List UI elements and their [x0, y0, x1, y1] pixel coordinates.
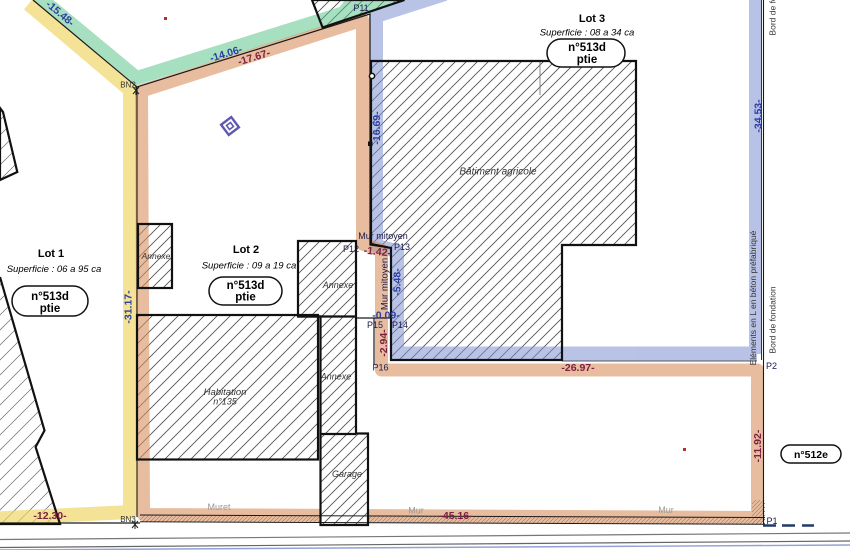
svg-text:Mur mitoyen: Mur mitoyen [380, 258, 391, 310]
svg-text:BN2: BN2 [120, 81, 136, 90]
svg-text:Garage: Garage [332, 469, 362, 479]
svg-text:P12: P12 [343, 244, 359, 254]
svg-text:Superficie : 09 a 19 ca: Superficie : 09 a 19 ca [202, 261, 297, 272]
svg-text:-34.53-: -34.53- [753, 99, 765, 133]
svg-text:n°135: n°135 [213, 397, 238, 407]
svg-text:Mur: Mur [408, 506, 424, 516]
svg-text:Annexe: Annexe [322, 280, 354, 290]
svg-text:-31.17-: -31.17- [123, 290, 135, 324]
svg-text:P1: P1 [766, 516, 777, 526]
svg-text:n°513d: n°513d [568, 42, 606, 54]
svg-text:-45.16-: -45.16- [439, 510, 473, 522]
svg-text:-12.30-: -12.30- [33, 510, 67, 522]
svg-text:Muret: Muret [207, 502, 231, 512]
svg-text:-2.94-: -2.94- [378, 329, 390, 357]
svg-text:n°513d: n°513d [31, 291, 69, 303]
svg-text:P11: P11 [353, 3, 368, 13]
svg-text:Annexe: Annexe [141, 251, 171, 261]
svg-text:BN3: BN3 [120, 515, 136, 524]
svg-text:ptie: ptie [235, 292, 255, 304]
svg-text:-26.97-: -26.97- [561, 362, 595, 374]
svg-text:Mur: Mur [658, 505, 674, 515]
svg-text:Lot 3: Lot 3 [579, 13, 605, 25]
svg-text:P14: P14 [392, 320, 408, 330]
svg-text:n°513d: n°513d [227, 280, 265, 292]
svg-text:-16.69-: -16.69- [371, 111, 383, 145]
svg-text:Lot 2: Lot 2 [233, 244, 259, 256]
svg-text:P2: P2 [766, 361, 777, 371]
svg-text:Superficie : 08 a 34 ca: Superficie : 08 a 34 ca [540, 28, 635, 39]
svg-text:-5.48-: -5.48- [392, 268, 404, 296]
svg-text:P16: P16 [372, 363, 388, 373]
svg-text:P13: P13 [394, 242, 410, 252]
svg-text:Bord de fondation: Bord de fondation [768, 0, 778, 36]
svg-text:Bord de fondation: Bord de fondation [768, 286, 778, 353]
svg-text:ptie: ptie [577, 54, 597, 66]
svg-text:Mur mitoyen: Mur mitoyen [358, 231, 408, 241]
svg-text:Lot 1: Lot 1 [38, 248, 64, 260]
svg-text:ptie: ptie [40, 303, 60, 315]
svg-text:n°512e: n°512e [794, 449, 828, 461]
svg-text:P15: P15 [367, 320, 383, 330]
svg-text:Annexe: Annexe [320, 372, 352, 382]
svg-text:Bâtiment agricole: Bâtiment agricole [459, 167, 537, 178]
svg-text:Eléments en L en béton préfabr: Eléments en L en béton préfabriqué [748, 230, 758, 365]
svg-text:-11.92-: -11.92- [752, 429, 764, 462]
svg-text:Superficie : 06 a 95 ca: Superficie : 06 a 95 ca [7, 264, 102, 275]
